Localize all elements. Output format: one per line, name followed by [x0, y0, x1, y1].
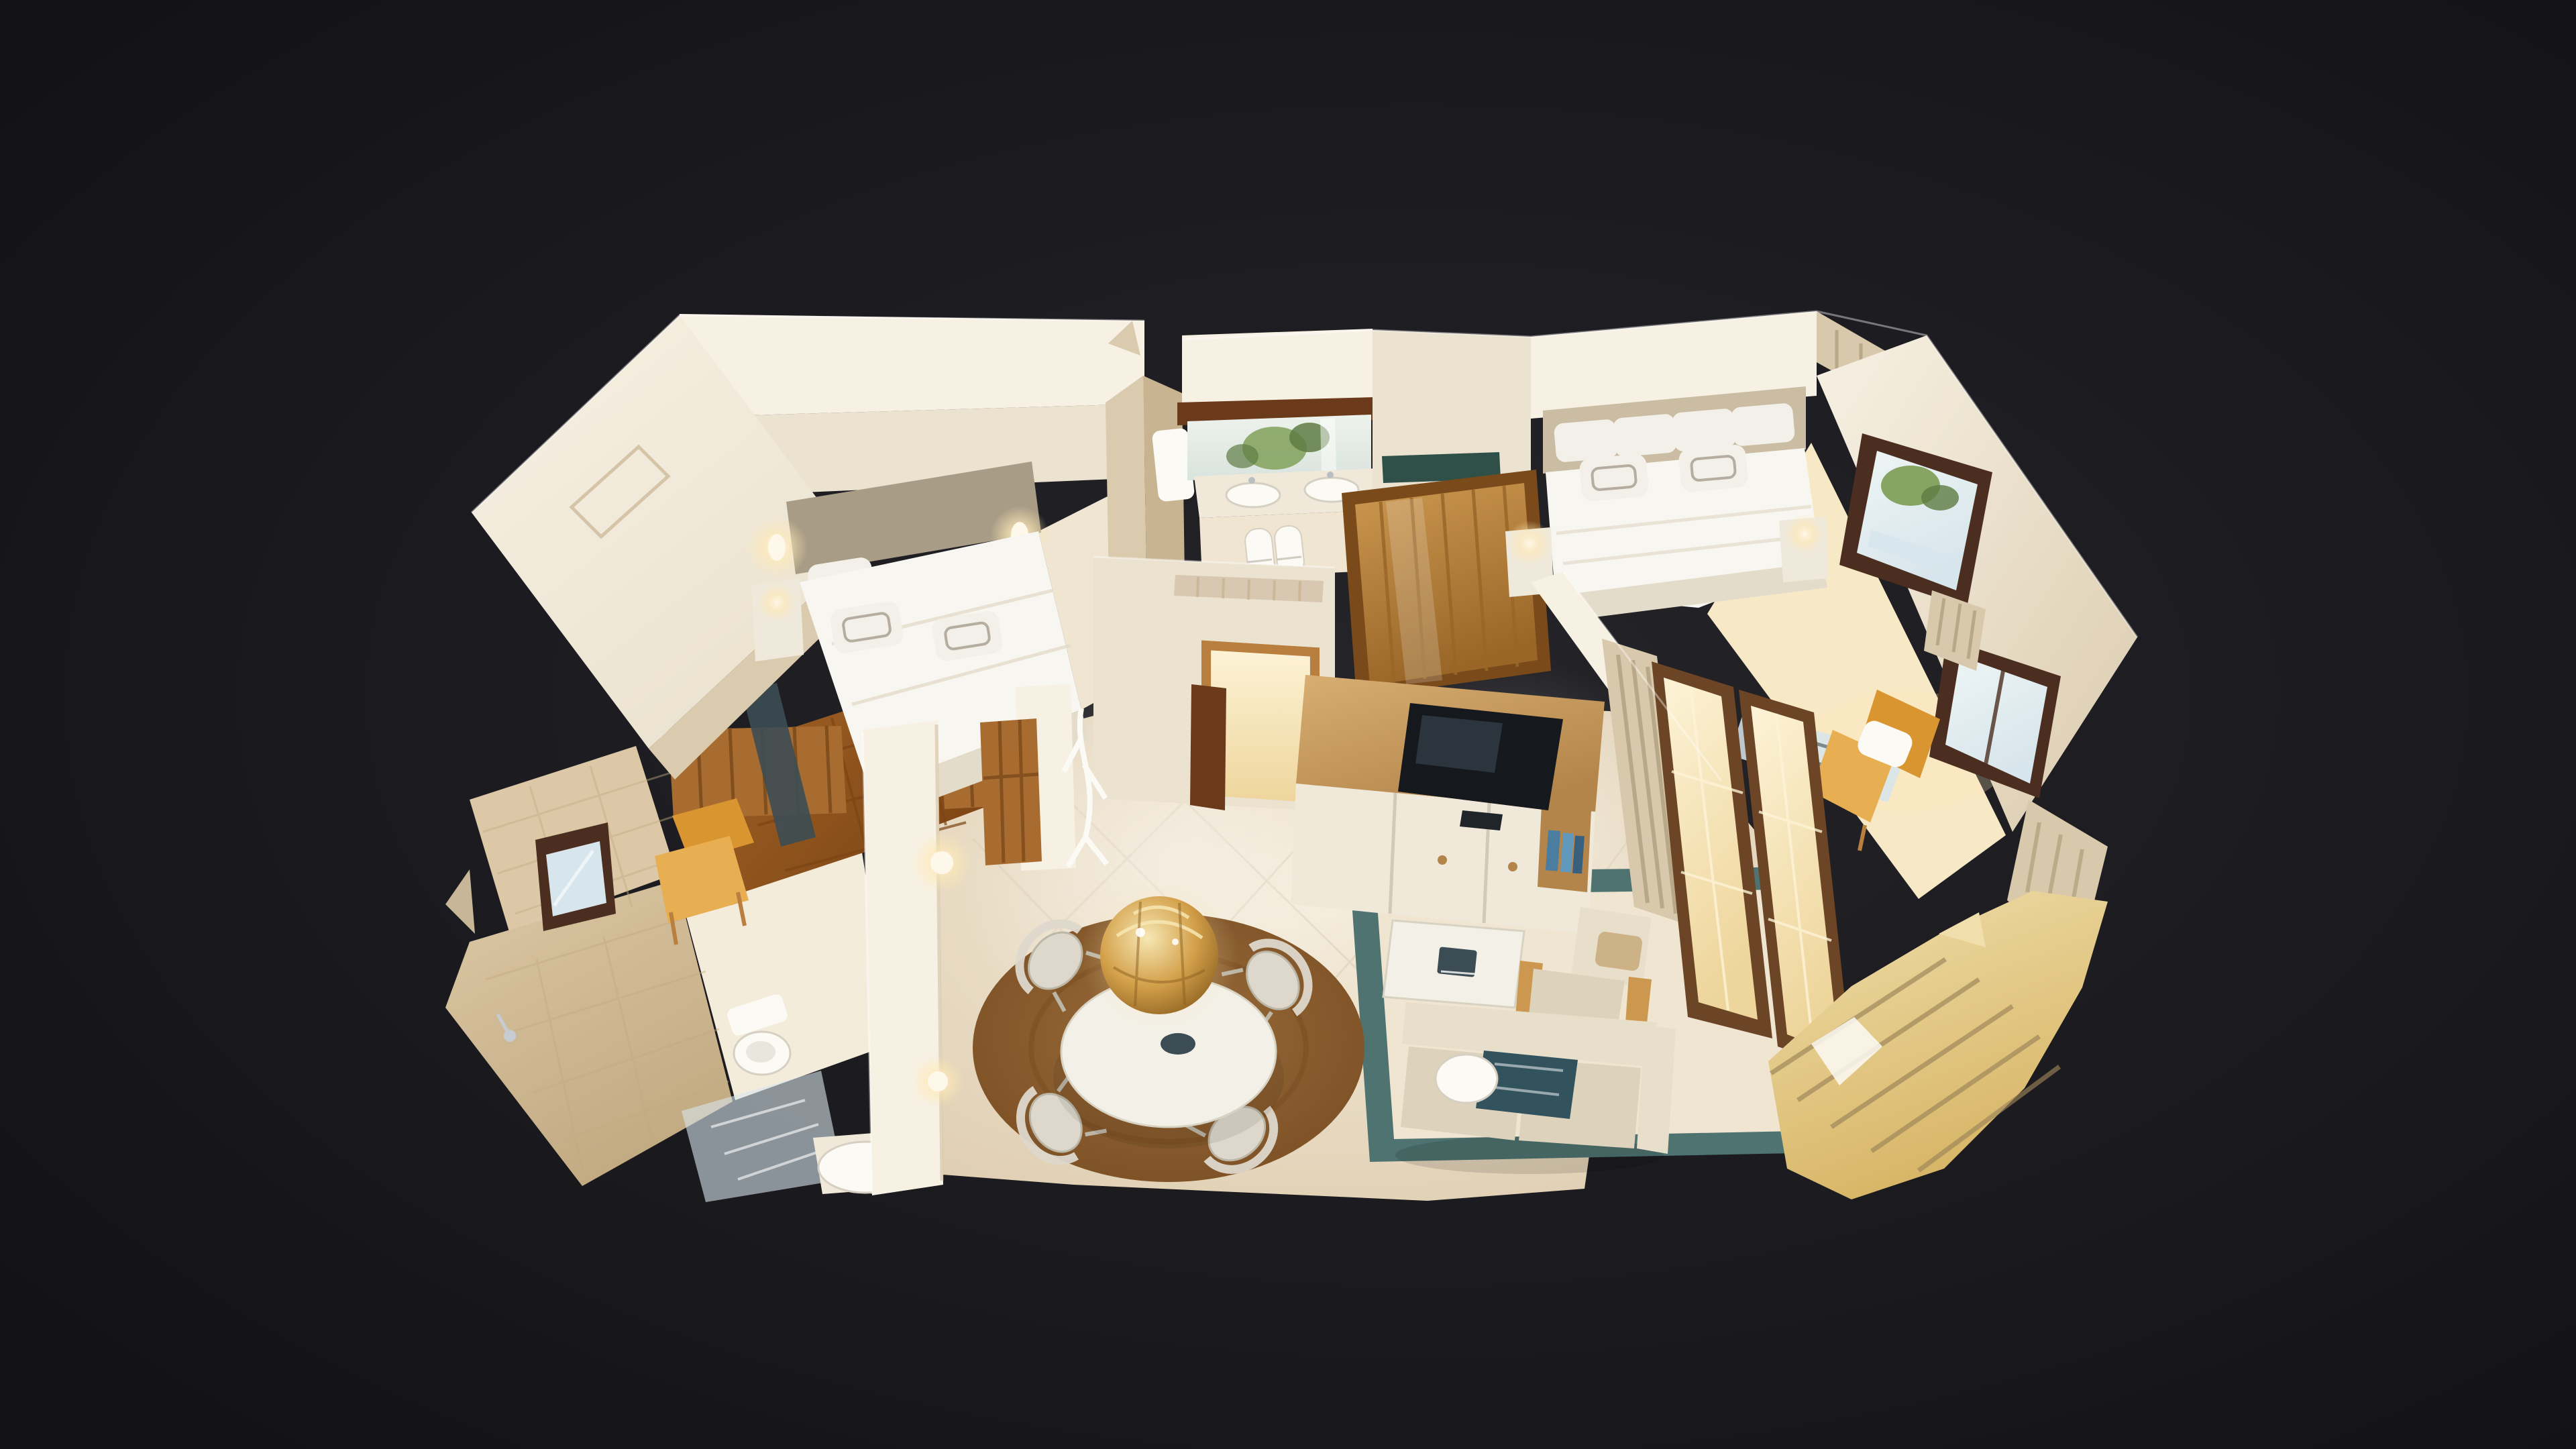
- bed-pillow: [1554, 419, 1619, 463]
- chandelier-sparkle: [1172, 938, 1179, 945]
- toilet-bowl: [746, 1041, 775, 1063]
- sideboard-knob: [1438, 855, 1447, 865]
- white-pillar: [863, 720, 943, 1195]
- back-wall-upper: [680, 314, 1144, 417]
- window-greenery-2: [1921, 485, 1959, 511]
- gold-sphere-chandelier: [1100, 896, 1218, 1014]
- sconce-left: [768, 534, 786, 561]
- table-centerpiece: [1161, 1033, 1195, 1055]
- doorway-glow: [1212, 648, 1309, 802]
- nightstand-lamp-glow: [757, 582, 797, 623]
- dollhouse-3d-viewport[interactable]: [0, 0, 2576, 1449]
- tv-screen-glare: [1415, 715, 1503, 773]
- pillar-lamp-2: [928, 1071, 948, 1091]
- sideboard-knob: [1508, 862, 1517, 871]
- vanity-sink-left: [1226, 483, 1280, 507]
- faucet: [1327, 472, 1334, 478]
- open-door-leaf: [1190, 684, 1226, 810]
- bed-pillow: [1613, 413, 1678, 458]
- nightstand-lamp-glow: [1507, 521, 1552, 566]
- bed-pillow: [1672, 408, 1737, 452]
- front-pillow: [1678, 444, 1748, 492]
- pillar-lamp: [930, 851, 953, 874]
- round-white-pillow: [1436, 1055, 1497, 1103]
- faucet: [1248, 477, 1255, 484]
- hall-door-leaf: [980, 718, 1042, 865]
- tv-sideboard: [1291, 675, 1605, 934]
- mirror-reflection-streak: [1320, 418, 1336, 474]
- hall-wardrobe: [1342, 330, 1551, 698]
- mirror-plant-3: [1226, 444, 1258, 468]
- chandelier-sparkle: [1136, 928, 1145, 937]
- dollhouse-render: [0, 0, 2576, 1449]
- front-pillow: [1578, 453, 1649, 502]
- nightstand-lamp-glow: [1784, 514, 1825, 554]
- bed-pillow: [1731, 402, 1796, 447]
- armchair-pattern-pillow: [1595, 931, 1644, 972]
